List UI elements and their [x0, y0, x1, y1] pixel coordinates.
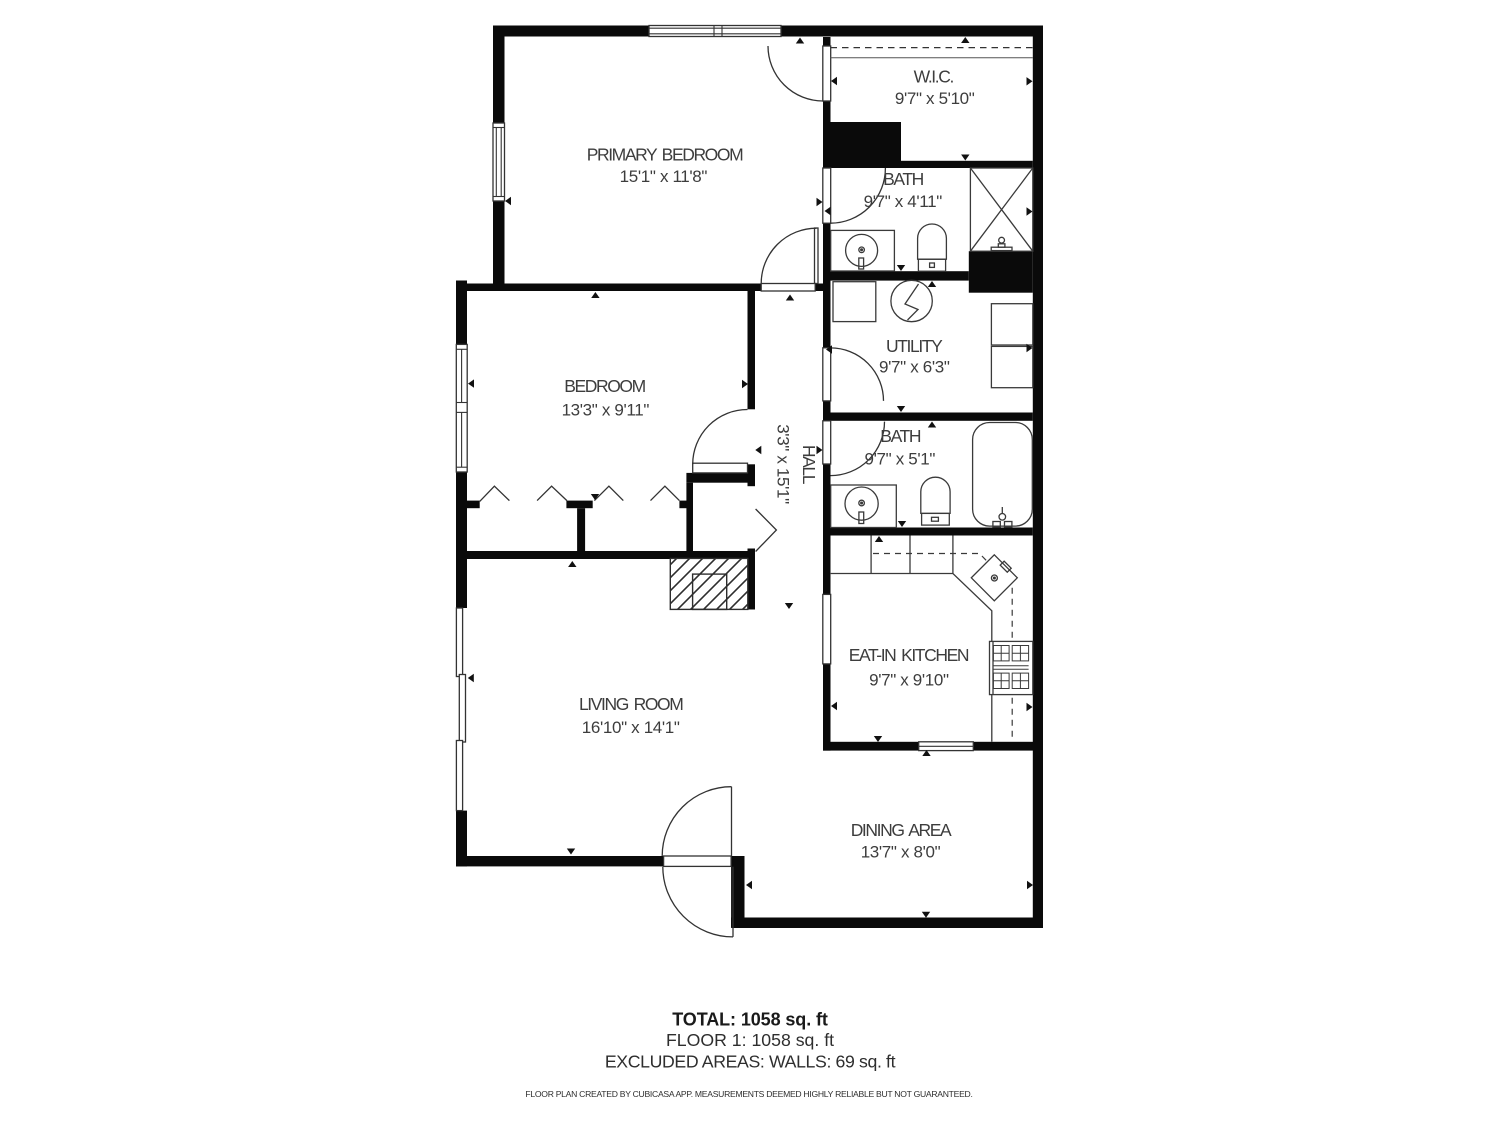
svg-text:13'7" x 8'0": 13'7" x 8'0": [861, 842, 941, 861]
svg-text:9'7" x 5'10": 9'7" x 5'10": [895, 89, 975, 108]
svg-text:3'3" x 15'1": 3'3" x 15'1": [774, 424, 793, 504]
svg-text:BATH: BATH: [880, 426, 921, 446]
svg-text:DINING AREA: DINING AREA: [851, 820, 952, 840]
svg-text:LIVING ROOM: LIVING ROOM: [579, 694, 683, 714]
svg-text:TOTAL: 1058 sq. ft: TOTAL: 1058 sq. ft: [672, 1009, 828, 1029]
svg-text:9'7" x 4'11": 9'7" x 4'11": [864, 192, 943, 211]
svg-text:9'7" x 6'3": 9'7" x 6'3": [879, 358, 950, 377]
svg-text:FLOOR 1: 1058 sq. ft: FLOOR 1: 1058 sq. ft: [666, 1030, 834, 1050]
svg-text:W.I.C.: W.I.C.: [914, 67, 954, 87]
svg-text:PRIMARY BEDROOM: PRIMARY BEDROOM: [587, 144, 743, 164]
svg-text:9'7" x 5'1": 9'7" x 5'1": [865, 450, 936, 469]
svg-text:9'7" x 9'10": 9'7" x 9'10": [869, 670, 949, 689]
svg-text:BEDROOM: BEDROOM: [564, 376, 645, 396]
svg-text:FLOOR PLAN CREATED BY CUBICASA: FLOOR PLAN CREATED BY CUBICASA APP. MEAS…: [525, 1089, 972, 1099]
svg-text:15'1" x 11'8": 15'1" x 11'8": [620, 167, 708, 186]
svg-text:EXCLUDED AREAS: WALLS: 69 sq.: EXCLUDED AREAS: WALLS: 69 sq. ft: [605, 1052, 896, 1072]
svg-text:EAT-IN KITCHEN: EAT-IN KITCHEN: [849, 645, 969, 665]
svg-text:16'10" x 14'1": 16'10" x 14'1": [582, 718, 680, 737]
svg-text:13'3" x 9'11": 13'3" x 9'11": [562, 400, 650, 419]
svg-text:UTILITY: UTILITY: [886, 336, 943, 356]
svg-text:BATH: BATH: [883, 169, 924, 189]
svg-text:HALL: HALL: [799, 445, 819, 485]
